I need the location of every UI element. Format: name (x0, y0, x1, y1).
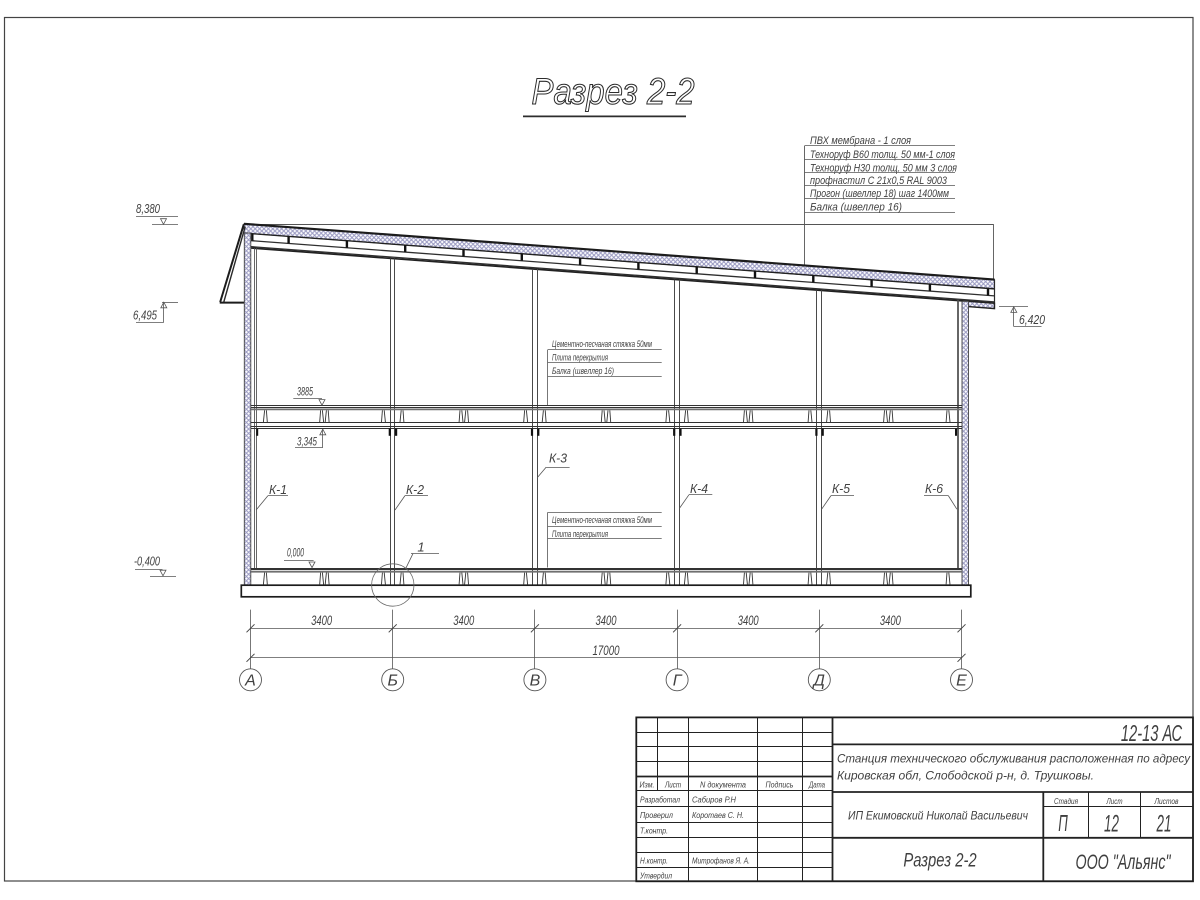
svg-text:ООО "Альянс": ООО "Альянс" (1075, 850, 1171, 873)
svg-text:Цементно-песчаная стяжка 50мм: Цементно-песчаная стяжка 50мм (552, 339, 652, 349)
svg-text:Станция технического обслужива: Станция технического обслуживания распол… (837, 752, 1191, 766)
svg-text:Балка (швеллер 16): Балка (швеллер 16) (552, 366, 614, 376)
svg-text:21: 21 (1156, 811, 1172, 838)
svg-text:Плита перекрытия: Плита перекрытия (552, 352, 608, 362)
svg-text:3885: 3885 (297, 385, 313, 399)
svg-text:К-3: К-3 (549, 451, 568, 466)
svg-text:К-2: К-2 (406, 482, 425, 497)
svg-text:6,495: 6,495 (133, 308, 158, 323)
svg-text:Н.контр.: Н.контр. (640, 855, 668, 865)
svg-text:К-4: К-4 (690, 481, 708, 496)
svg-text:К-6: К-6 (925, 481, 944, 496)
svg-text:Кировская обл, Слободской р-н,: Кировская обл, Слободской р-н, д. Трушко… (837, 768, 1094, 782)
svg-text:12-13 АС: 12-13 АС (1121, 722, 1183, 747)
svg-text:1: 1 (417, 540, 424, 555)
svg-text:3400: 3400 (453, 612, 474, 628)
svg-text:Митрофанов Я. А.: Митрофанов Я. А. (692, 855, 750, 865)
svg-text:К-5: К-5 (832, 481, 851, 496)
svg-text:3400: 3400 (738, 612, 759, 628)
svg-text:3,345: 3,345 (297, 435, 317, 449)
svg-text:Плита перекрытия: Плита перекрытия (552, 529, 608, 539)
svg-text:Изм.: Изм. (640, 780, 655, 790)
svg-text:ИП Екимовский Николай Васильев: ИП Екимовский Николай Васильевич (848, 809, 1028, 823)
svg-text:17000: 17000 (593, 642, 620, 658)
svg-text:Стадия: Стадия (1054, 796, 1078, 806)
svg-text:3400: 3400 (596, 612, 617, 628)
svg-text:Коротаев С. Н.: Коротаев С. Н. (692, 810, 744, 820)
svg-text:В: В (530, 673, 541, 690)
svg-text:8,380: 8,380 (136, 201, 161, 216)
svg-text:Утвердил: Утвердил (639, 870, 672, 880)
svg-text:3400: 3400 (880, 612, 901, 628)
svg-text:6,420: 6,420 (1019, 312, 1046, 327)
svg-text:N документа: N документа (700, 780, 746, 790)
svg-text:-0,400: -0,400 (134, 554, 161, 569)
svg-text:Разрез 2-2: Разрез 2-2 (532, 71, 695, 112)
svg-text:Е: Е (956, 673, 967, 690)
svg-text:0,000: 0,000 (287, 546, 304, 560)
svg-text:П: П (1058, 811, 1068, 837)
svg-text:Г: Г (673, 673, 683, 690)
svg-text:Д: Д (812, 673, 825, 690)
svg-text:Цементно-песчаная стяжка 50мм: Цементно-песчаная стяжка 50мм (552, 515, 652, 525)
svg-text:К-1: К-1 (269, 482, 287, 497)
svg-text:Лист: Лист (1106, 796, 1123, 806)
svg-text:Дата: Дата (808, 780, 825, 790)
svg-text:Сабиров Р.Н: Сабиров Р.Н (692, 795, 737, 805)
svg-text:Б: Б (387, 673, 397, 690)
svg-text:Разрез 2-2: Разрез 2-2 (903, 848, 977, 871)
svg-text:Подпись: Подпись (766, 780, 794, 790)
svg-text:Проверил: Проверил (640, 810, 673, 820)
svg-text:А: А (244, 673, 256, 690)
svg-text:Т.контр.: Т.контр. (640, 826, 668, 836)
svg-text:3400: 3400 (311, 612, 332, 628)
svg-text:Разработал: Разработал (640, 795, 680, 805)
svg-text:Лист: Лист (664, 780, 681, 790)
svg-text:Балка (швеллер 16): Балка (швеллер 16) (810, 202, 902, 214)
svg-text:12: 12 (1104, 811, 1119, 838)
svg-text:Листов: Листов (1154, 796, 1179, 806)
